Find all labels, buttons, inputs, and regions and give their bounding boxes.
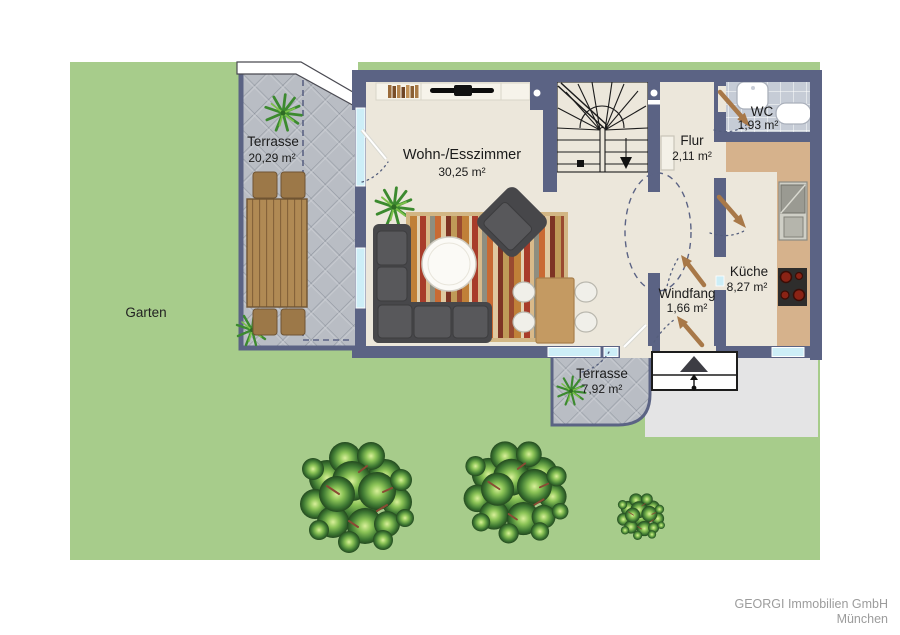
kitchen-stove [778, 268, 807, 306]
kitchen-label: Küche [730, 264, 768, 279]
living-dining-label: Wohn-/Esszimmer [403, 147, 521, 163]
window-living-south-2 [604, 348, 618, 357]
hallway-area: 2,11 m² [672, 149, 712, 163]
floor-plan-page: Garten Terrasse 20,29 m² Wohn-/Esszimmer… [0, 0, 900, 635]
floor-plan-svg: Garten Terrasse 20,29 m² Wohn-/Esszimmer… [0, 0, 900, 635]
terrace-small-area: 7,92 m² [582, 382, 623, 396]
kitchen-sink [779, 182, 807, 240]
vestibule-label: Windfang [658, 286, 715, 301]
window-living-west [356, 248, 365, 308]
garden-label: Garten [125, 305, 166, 320]
kitchen [722, 140, 810, 346]
wc-area: 1,93 m² [738, 118, 779, 132]
window-living-south [548, 348, 600, 357]
living-dining-area: 30,25 m² [438, 165, 485, 179]
terrace-large [237, 62, 360, 350]
sideboard [376, 83, 530, 100]
staircase [557, 82, 648, 172]
wc-label: WC [751, 104, 774, 119]
terrace-large-label: Terrasse [247, 134, 299, 149]
footer-company: GEORGI Immobilien GmbH [734, 597, 888, 611]
window-kitchen-south [772, 348, 804, 357]
terrace-large-area: 20,29 m² [248, 151, 295, 165]
door-sill [716, 276, 724, 286]
kitchen-area: 8,27 m² [727, 280, 768, 294]
window-terrace-door [356, 108, 365, 186]
door-gap-hall-kitchen [714, 142, 726, 178]
entrance-steps [652, 352, 737, 390]
terrace-table-set [247, 172, 307, 335]
vestibule-area: 1,66 m² [667, 301, 708, 315]
kitchen-floor [722, 172, 777, 346]
wc-toilet [776, 103, 811, 124]
terrace-small-label: Terrasse [576, 366, 628, 381]
hallway-label: Flur [680, 133, 704, 148]
coffee-table [422, 237, 476, 291]
footer-city: München [837, 612, 888, 626]
stairs-start-marker [577, 160, 584, 167]
